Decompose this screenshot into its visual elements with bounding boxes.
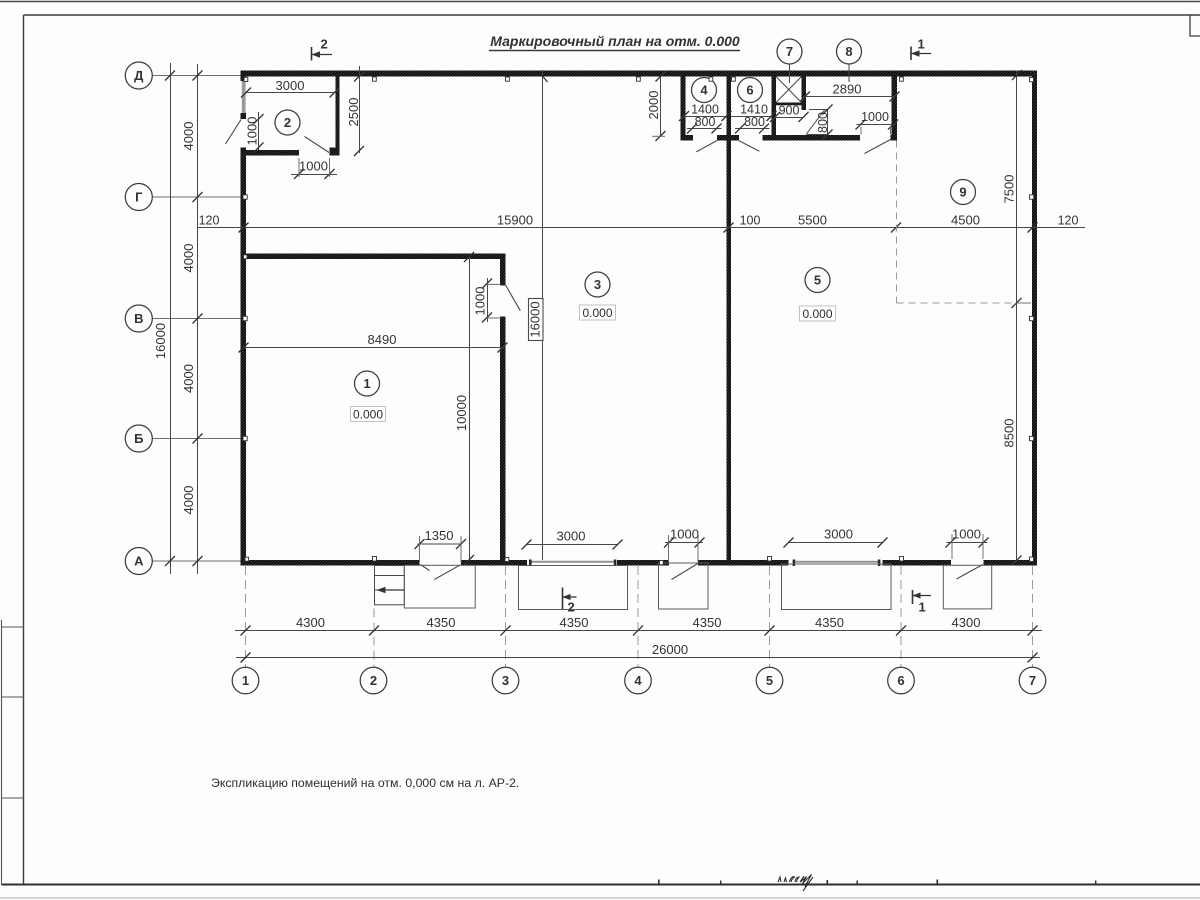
svg-text:3: 3 xyxy=(594,277,601,292)
svg-text:0.000: 0.000 xyxy=(582,306,612,320)
svg-text:9: 9 xyxy=(959,185,966,200)
svg-text:15900: 15900 xyxy=(497,213,533,228)
svg-text:16000: 16000 xyxy=(528,301,543,337)
svg-text:7500: 7500 xyxy=(1002,175,1017,204)
svg-text:1000: 1000 xyxy=(952,527,981,542)
svg-text:4500: 4500 xyxy=(951,213,980,228)
svg-text:1: 1 xyxy=(919,600,926,615)
svg-text:Б: Б xyxy=(134,431,143,446)
svg-text:8500: 8500 xyxy=(1002,419,1017,448)
svg-text:5500: 5500 xyxy=(798,213,827,228)
svg-text:3000: 3000 xyxy=(276,78,305,93)
svg-text:8: 8 xyxy=(845,44,852,59)
svg-text:1350: 1350 xyxy=(425,528,454,543)
svg-text:Г: Г xyxy=(135,190,143,205)
svg-text:100: 100 xyxy=(740,214,761,228)
svg-text:0.000: 0.000 xyxy=(802,307,832,321)
svg-text:4350: 4350 xyxy=(693,615,722,630)
svg-text:2500: 2500 xyxy=(346,98,361,127)
svg-text:2: 2 xyxy=(370,673,377,688)
svg-text:3: 3 xyxy=(502,673,509,688)
svg-text:1000: 1000 xyxy=(861,110,889,124)
svg-text:Маркировочный план на отм. 0.0: Маркировочный план на отм. 0.000 xyxy=(490,33,740,49)
svg-text:2: 2 xyxy=(321,37,328,52)
svg-text:4000: 4000 xyxy=(181,364,196,393)
svg-text:120: 120 xyxy=(199,214,220,228)
svg-text:2000: 2000 xyxy=(646,91,661,120)
svg-text:3000: 3000 xyxy=(824,527,853,542)
svg-text:4: 4 xyxy=(700,83,708,98)
svg-text:2890: 2890 xyxy=(833,82,862,97)
svg-text:0.000: 0.000 xyxy=(353,407,383,421)
svg-text:1000: 1000 xyxy=(299,159,328,174)
svg-text:8490: 8490 xyxy=(368,332,397,347)
svg-text:4: 4 xyxy=(634,673,642,688)
svg-text:1000: 1000 xyxy=(670,527,699,542)
svg-text:1000: 1000 xyxy=(245,117,260,146)
svg-text:4000: 4000 xyxy=(181,486,196,515)
svg-text:4350: 4350 xyxy=(815,615,844,630)
svg-text:4000: 4000 xyxy=(181,122,196,151)
svg-text:2: 2 xyxy=(568,600,575,615)
svg-text:4350: 4350 xyxy=(427,615,456,630)
svg-text:1: 1 xyxy=(242,673,249,688)
svg-text:5: 5 xyxy=(814,273,821,288)
svg-text:800: 800 xyxy=(695,115,716,129)
svg-text:В: В xyxy=(134,311,143,326)
svg-text:1000: 1000 xyxy=(473,287,488,316)
svg-text:5: 5 xyxy=(766,673,773,688)
svg-text:7: 7 xyxy=(786,44,793,59)
svg-text:10000: 10000 xyxy=(454,395,469,431)
svg-text:4000: 4000 xyxy=(181,244,196,273)
svg-text:16000: 16000 xyxy=(153,323,168,359)
svg-text:7: 7 xyxy=(1029,673,1036,688)
svg-text:4300: 4300 xyxy=(952,615,981,630)
svg-text:800: 800 xyxy=(816,112,830,133)
svg-text:120: 120 xyxy=(1058,214,1079,228)
svg-text:26000: 26000 xyxy=(652,642,688,657)
svg-text:А: А xyxy=(134,554,144,569)
svg-text:6: 6 xyxy=(746,83,753,98)
svg-text:4300: 4300 xyxy=(296,615,325,630)
svg-text:900: 900 xyxy=(779,104,800,118)
svg-text:1: 1 xyxy=(363,376,370,391)
svg-text:3000: 3000 xyxy=(557,529,586,544)
svg-text:4350: 4350 xyxy=(560,615,589,630)
svg-text:800: 800 xyxy=(744,115,765,129)
svg-text:2: 2 xyxy=(284,115,291,130)
svg-text:Экспликацию помещений на отм.: Экспликацию помещений на отм. 0,000 см н… xyxy=(211,776,519,790)
svg-text:6: 6 xyxy=(897,673,904,688)
svg-text:Д: Д xyxy=(134,68,144,83)
svg-text:1: 1 xyxy=(918,37,925,52)
